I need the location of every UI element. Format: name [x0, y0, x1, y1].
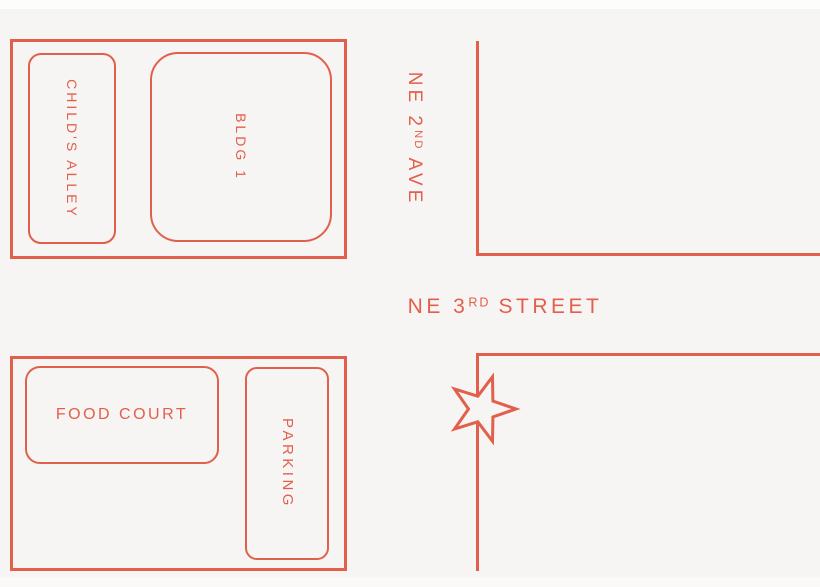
bldg-1-label: BLDG 1 [233, 113, 249, 181]
ne-3rd-street-label: NE 3RDSTREET [408, 295, 603, 319]
ne-3rd-street-suffix-text: STREET [499, 295, 603, 318]
ne-3rd-street-base-text: NE 3 [408, 295, 469, 318]
ne-2nd-ave-suffix-text: AVE [404, 158, 425, 207]
bldg-1-area: BLDG 1 [150, 52, 332, 242]
food-court-area: FOOD COURT [25, 366, 219, 464]
ne-3rd-street-ordinal-text: RD [468, 295, 490, 309]
ne-2nd-ave-base-text: NE 2 [404, 72, 425, 130]
childs-alley-area: CHILD'S ALLEY [28, 53, 116, 244]
ne-2nd-ave-road-north-segment [476, 41, 820, 256]
childs-alley-label: CHILD'S ALLEY [64, 79, 80, 219]
food-court-label: FOOD COURT [56, 406, 188, 424]
parking-area: PARKING [245, 367, 329, 560]
ne-2nd-ave-ordinal-text: ND [412, 130, 424, 150]
ne-2nd-ave-road-south-segment [476, 353, 820, 571]
star-icon [444, 371, 520, 447]
page-top-margin [0, 0, 820, 9]
page-bottom-margin [0, 577, 820, 587]
north-block-outline: CHILD'S ALLEY BLDG 1 [10, 39, 347, 259]
ne-2nd-ave-label: NE 2NDAVE [403, 72, 425, 207]
south-block-outline: FOOD COURT PARKING [10, 356, 347, 571]
site-map-canvas: CHILD'S ALLEY BLDG 1 NE 2NDAVE NE 3RDSTR… [0, 0, 820, 587]
parking-label: PARKING [279, 418, 296, 509]
